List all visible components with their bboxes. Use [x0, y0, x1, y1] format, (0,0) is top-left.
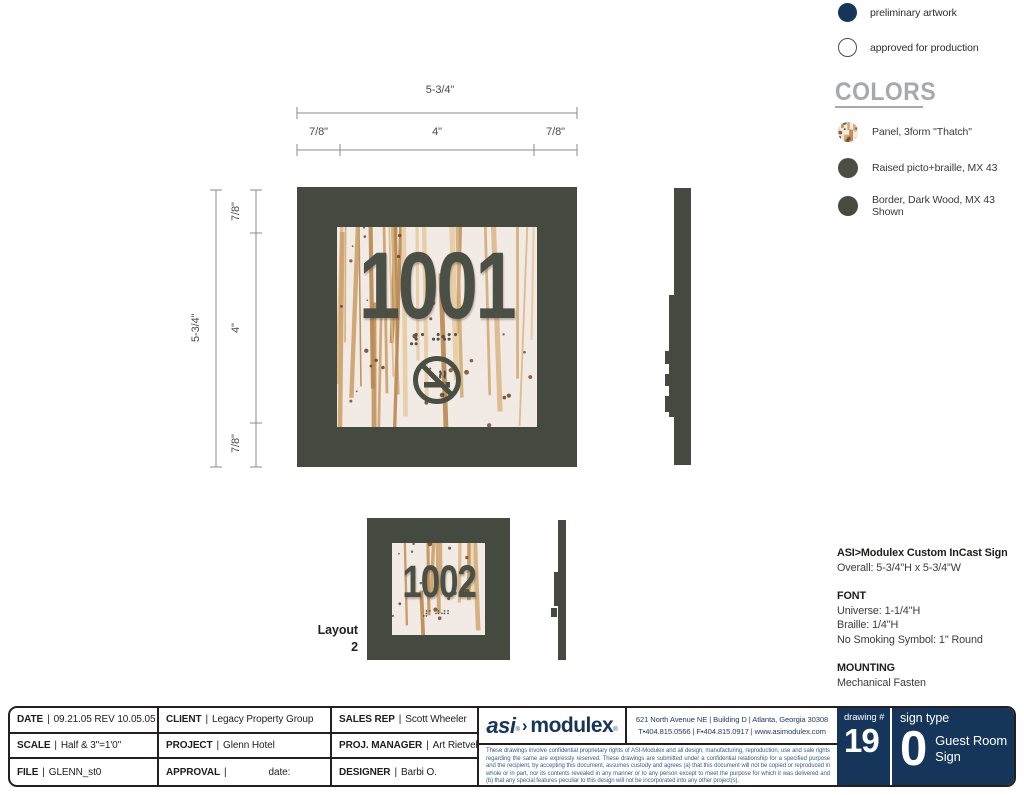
spec-font-heading: FONT	[837, 589, 1022, 604]
legend-row-preliminary: preliminary artwork	[838, 3, 957, 22]
spec-mounting-heading: MOUNTING	[837, 661, 1022, 676]
cell-file: FILE|GLENN_st0	[10, 759, 159, 785]
cell-projmanager: PROJ. MANAGER|Art Rietveld	[332, 734, 479, 760]
address-line2[interactable]: T•404.815.0566 | F•404.815.0917 | www.as…	[638, 726, 826, 738]
spec-mounting: Mechanical Fasten	[837, 676, 1022, 691]
border-swatch-icon	[838, 196, 858, 216]
cell-project: PROJECT|Glenn Hotel	[159, 734, 332, 760]
dim-overall-height: 5-3/4"	[190, 185, 202, 470]
spec-font-line: Universe: 1-1/4"H	[837, 604, 1022, 619]
room-number: 1001	[337, 251, 537, 321]
colors-underline	[835, 106, 923, 108]
spec-overall: Overall: 5-3/4"H x 5-3/4"W	[837, 561, 1022, 576]
approved-label: approved for production	[870, 42, 979, 54]
main-sign-front-view: 1001	[297, 187, 577, 467]
main-sign-panel: 1001	[337, 227, 537, 427]
alt-sign-front-view: 1002	[367, 518, 510, 660]
thatch-swatch-icon	[838, 122, 858, 142]
sign-type-value: 0	[900, 726, 927, 772]
dim-center-width: 4"	[340, 126, 534, 138]
no-smoking-icon	[411, 354, 463, 406]
color-item-panel: Panel, 3form "Thatch"	[838, 122, 972, 142]
dim-center-height: 4"	[230, 233, 242, 423]
cell-scale: SCALE|Half & 3"=1'0"	[10, 734, 159, 760]
drawing-id-panel: drawing # 19 sign type 0 Guest Room Sign	[837, 708, 1014, 785]
color-item-border: Border, Dark Wood, MX 43 Shown	[838, 194, 1024, 218]
address-line1: 621 North Avenue NE | Building D | Atlan…	[636, 714, 828, 726]
color-label: Border, Dark Wood, MX 43 Shown	[872, 194, 1024, 218]
cell-designer: DESIGNER|Barbi O.	[332, 759, 479, 785]
drawing-number-value: 19	[844, 723, 890, 759]
dim-top-margin: 7/8"	[230, 190, 242, 233]
cell-client: CLIENT|Legacy Property Group	[159, 708, 332, 734]
color-label: Raised picto+braille, MX 43	[872, 162, 997, 174]
color-item-picto: Raised picto+braille, MX 43	[838, 158, 997, 178]
cell-date: DATE|09.21.05 REV 10.05.05	[10, 708, 159, 734]
title-block-table: DATE|09.21.05 REV 10.05.05 CLIENT|Legacy…	[10, 708, 479, 785]
spec-title: ASI>Modulex Custom InCast Sign	[837, 546, 1022, 561]
drawing-sheet: preliminary artwork approved for product…	[0, 0, 1024, 795]
braille-text	[337, 333, 537, 351]
sign-type-name: Guest Room Sign	[935, 733, 1007, 765]
asi-modulex-logo: asi®›modulex®	[479, 708, 627, 745]
approved-checkbox[interactable]	[838, 38, 857, 57]
spec-block: ASI>Modulex Custom InCast Sign Overall: …	[837, 546, 1022, 690]
cell-approval: APPROVAL|date:	[159, 759, 332, 785]
company-address: 621 North Avenue NE | Building D | Atlan…	[627, 708, 837, 745]
legal-fine-print: These drawings involve confidential prop…	[479, 745, 837, 785]
cell-salesrep: SALES REP|Scott Wheeler	[332, 708, 479, 734]
dim-overall-width: 5-3/4"	[290, 84, 590, 96]
drawing-number-box: drawing # 19	[837, 708, 890, 785]
picto-swatch-icon	[838, 158, 858, 178]
dim-right-margin: 7/8"	[534, 126, 577, 138]
room-number: 1002	[392, 565, 485, 599]
braille-text	[392, 605, 485, 623]
layout-label: Layout 2	[300, 622, 358, 656]
colors-heading: COLORS	[835, 78, 936, 107]
alt-sign-side-profile	[550, 520, 567, 660]
spec-font-line: Braille: 1/4"H	[837, 618, 1022, 633]
spec-font-line: No Smoking Symbol: 1" Round	[837, 633, 1022, 648]
preliminary-label: preliminary artwork	[870, 7, 957, 19]
dim-left-margin: 7/8"	[297, 126, 340, 138]
main-sign-side-profile	[664, 188, 694, 465]
legend-row-approved: approved for production	[838, 38, 979, 57]
title-block: DATE|09.21.05 REV 10.05.05 CLIENT|Legacy…	[8, 706, 1016, 787]
preliminary-checkbox[interactable]	[838, 3, 857, 22]
sign-type-box: sign type 0 Guest Room Sign	[892, 708, 1014, 785]
dim-bottom-margin: 7/8"	[230, 423, 242, 465]
color-label: Panel, 3form "Thatch"	[872, 126, 972, 138]
alt-sign-panel: 1002	[392, 543, 485, 635]
